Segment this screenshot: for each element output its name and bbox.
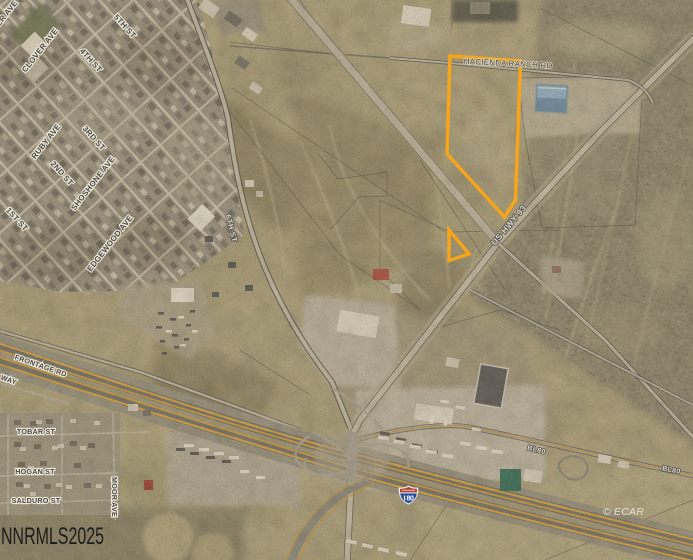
svg-text:© ECAR: © ECAR [603,506,644,518]
svg-text:I 80: I 80 [404,495,414,502]
svg-text:MOOR AVE: MOOR AVE [110,477,119,517]
svg-text:HOGAN ST: HOGAN ST [15,467,55,476]
svg-text:NNRMLS2025: NNRMLS2025 [1,523,104,550]
svg-text:TOBAR ST: TOBAR ST [17,427,56,436]
svg-text:SALDURO ST: SALDURO ST [12,496,61,505]
